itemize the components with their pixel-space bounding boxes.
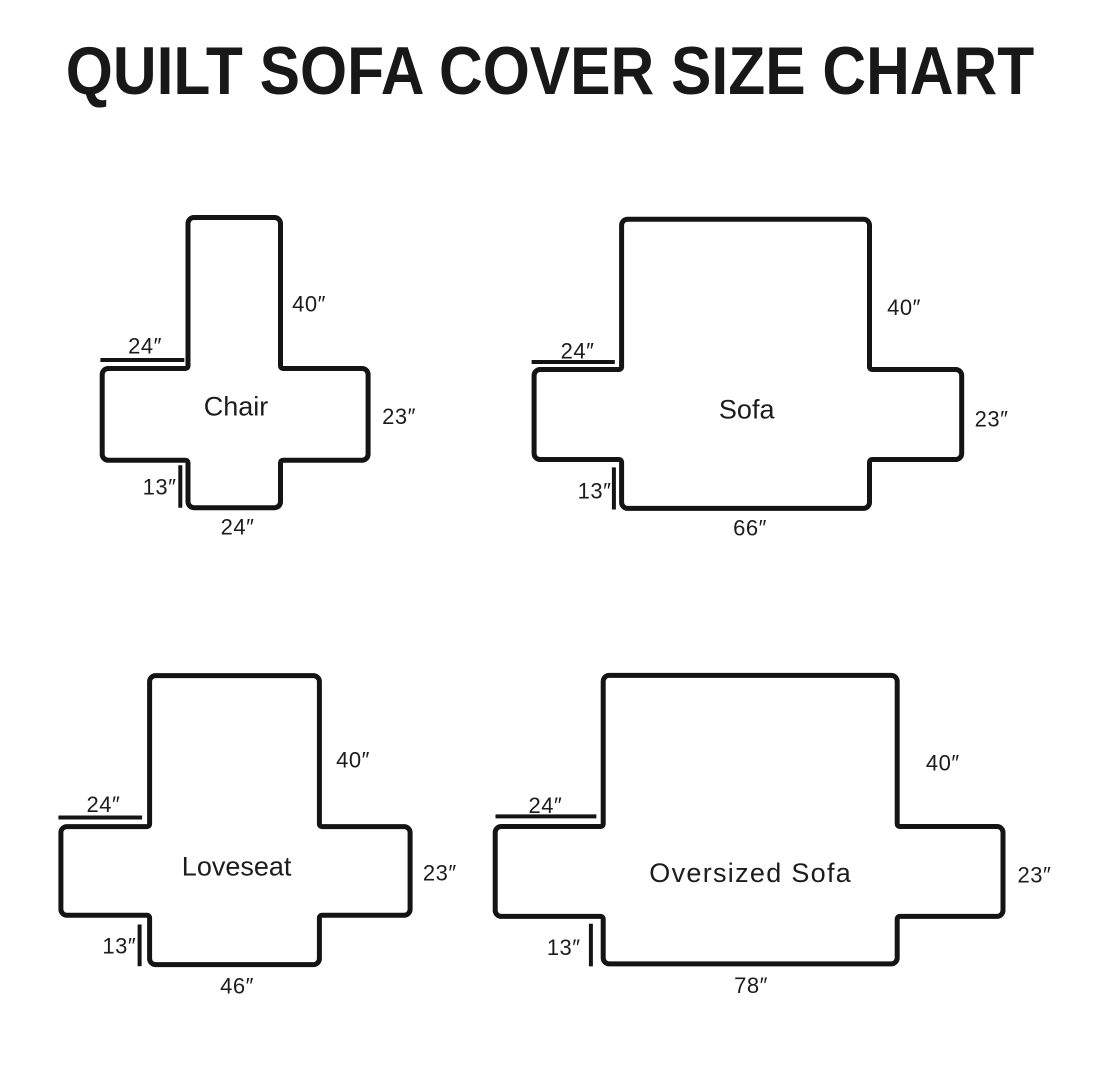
svg-text:24″: 24″ (128, 334, 162, 359)
svg-text:23″: 23″ (423, 861, 457, 886)
svg-text:46″: 46″ (220, 974, 254, 999)
svg-text:Chair: Chair (204, 392, 269, 422)
svg-text:24″: 24″ (561, 339, 595, 364)
svg-text:Oversized Sofa: Oversized Sofa (649, 858, 852, 888)
svg-text:66″: 66″ (733, 516, 767, 541)
svg-text:40″: 40″ (336, 748, 370, 773)
svg-text:24″: 24″ (529, 793, 563, 818)
svg-text:24″: 24″ (221, 515, 255, 540)
svg-text:13″: 13″ (547, 935, 581, 960)
svg-text:13″: 13″ (578, 479, 612, 504)
svg-text:78″: 78″ (734, 973, 768, 998)
svg-text:24″: 24″ (87, 792, 121, 817)
svg-text:Loveseat: Loveseat (182, 851, 292, 881)
svg-text:13″: 13″ (143, 475, 177, 500)
svg-text:23″: 23″ (382, 404, 416, 429)
svg-text:Sofa: Sofa (719, 394, 776, 424)
svg-text:40″: 40″ (887, 295, 921, 320)
svg-text:40″: 40″ (292, 292, 326, 317)
svg-text:40″: 40″ (926, 751, 960, 776)
svg-text:23″: 23″ (1018, 863, 1052, 888)
svg-text:23″: 23″ (975, 407, 1009, 432)
svg-text:13″: 13″ (102, 934, 136, 959)
